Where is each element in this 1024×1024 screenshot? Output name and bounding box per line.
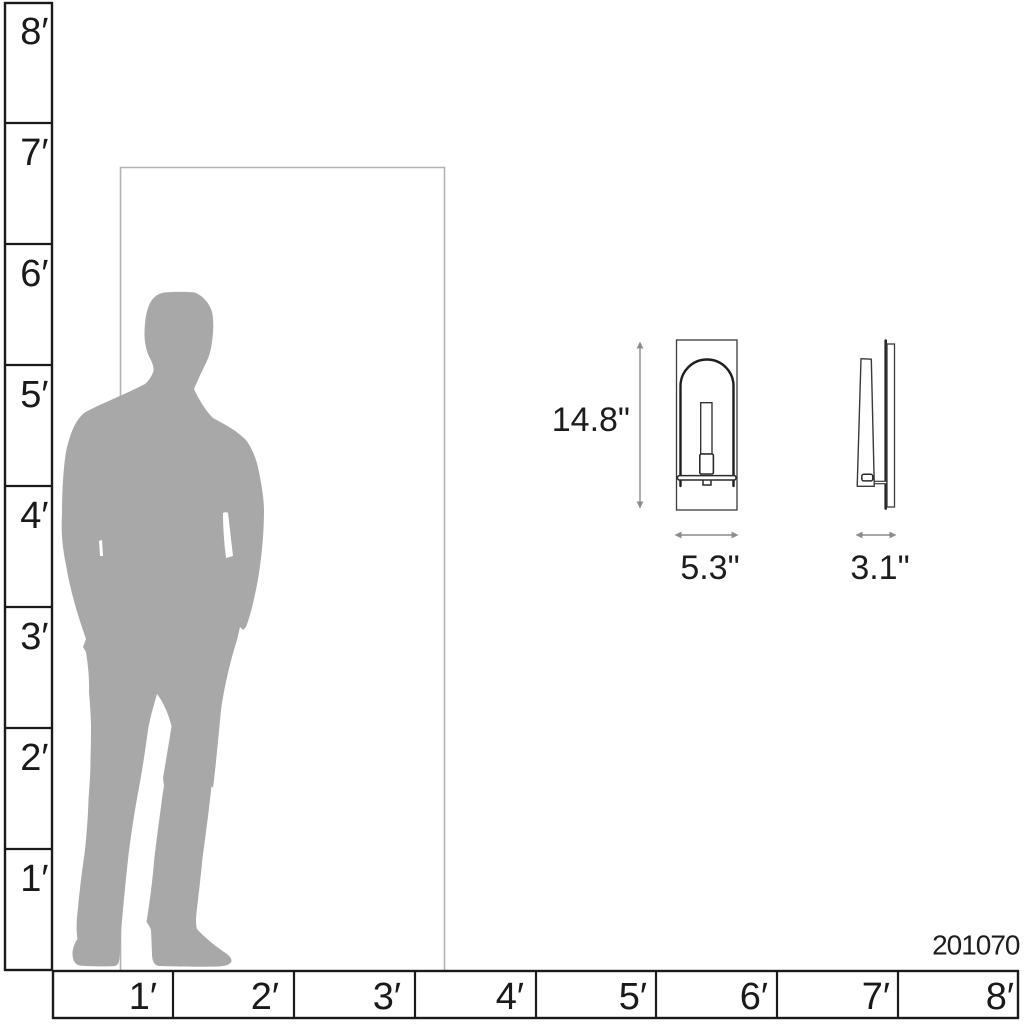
- svg-text:14.8": 14.8": [552, 401, 630, 439]
- svg-text:8′: 8′: [20, 11, 48, 53]
- svg-text:3′: 3′: [373, 976, 401, 1018]
- svg-text:1′: 1′: [129, 976, 157, 1018]
- svg-text:6′: 6′: [740, 976, 768, 1018]
- svg-text:5.3": 5.3": [680, 549, 739, 587]
- svg-text:6′: 6′: [20, 253, 48, 295]
- svg-text:201070: 201070: [932, 930, 1020, 961]
- svg-text:4′: 4′: [20, 495, 48, 537]
- svg-text:7′: 7′: [20, 132, 48, 174]
- svg-text:3′: 3′: [20, 616, 48, 658]
- svg-text:7′: 7′: [862, 976, 890, 1018]
- svg-text:2′: 2′: [20, 737, 48, 779]
- svg-text:4′: 4′: [496, 976, 524, 1018]
- svg-text:1′: 1′: [20, 858, 48, 900]
- svg-text:3.1": 3.1": [850, 549, 909, 587]
- svg-text:2′: 2′: [251, 976, 279, 1018]
- svg-text:5′: 5′: [619, 976, 647, 1018]
- svg-text:8′: 8′: [986, 976, 1014, 1018]
- svg-text:5′: 5′: [20, 374, 48, 416]
